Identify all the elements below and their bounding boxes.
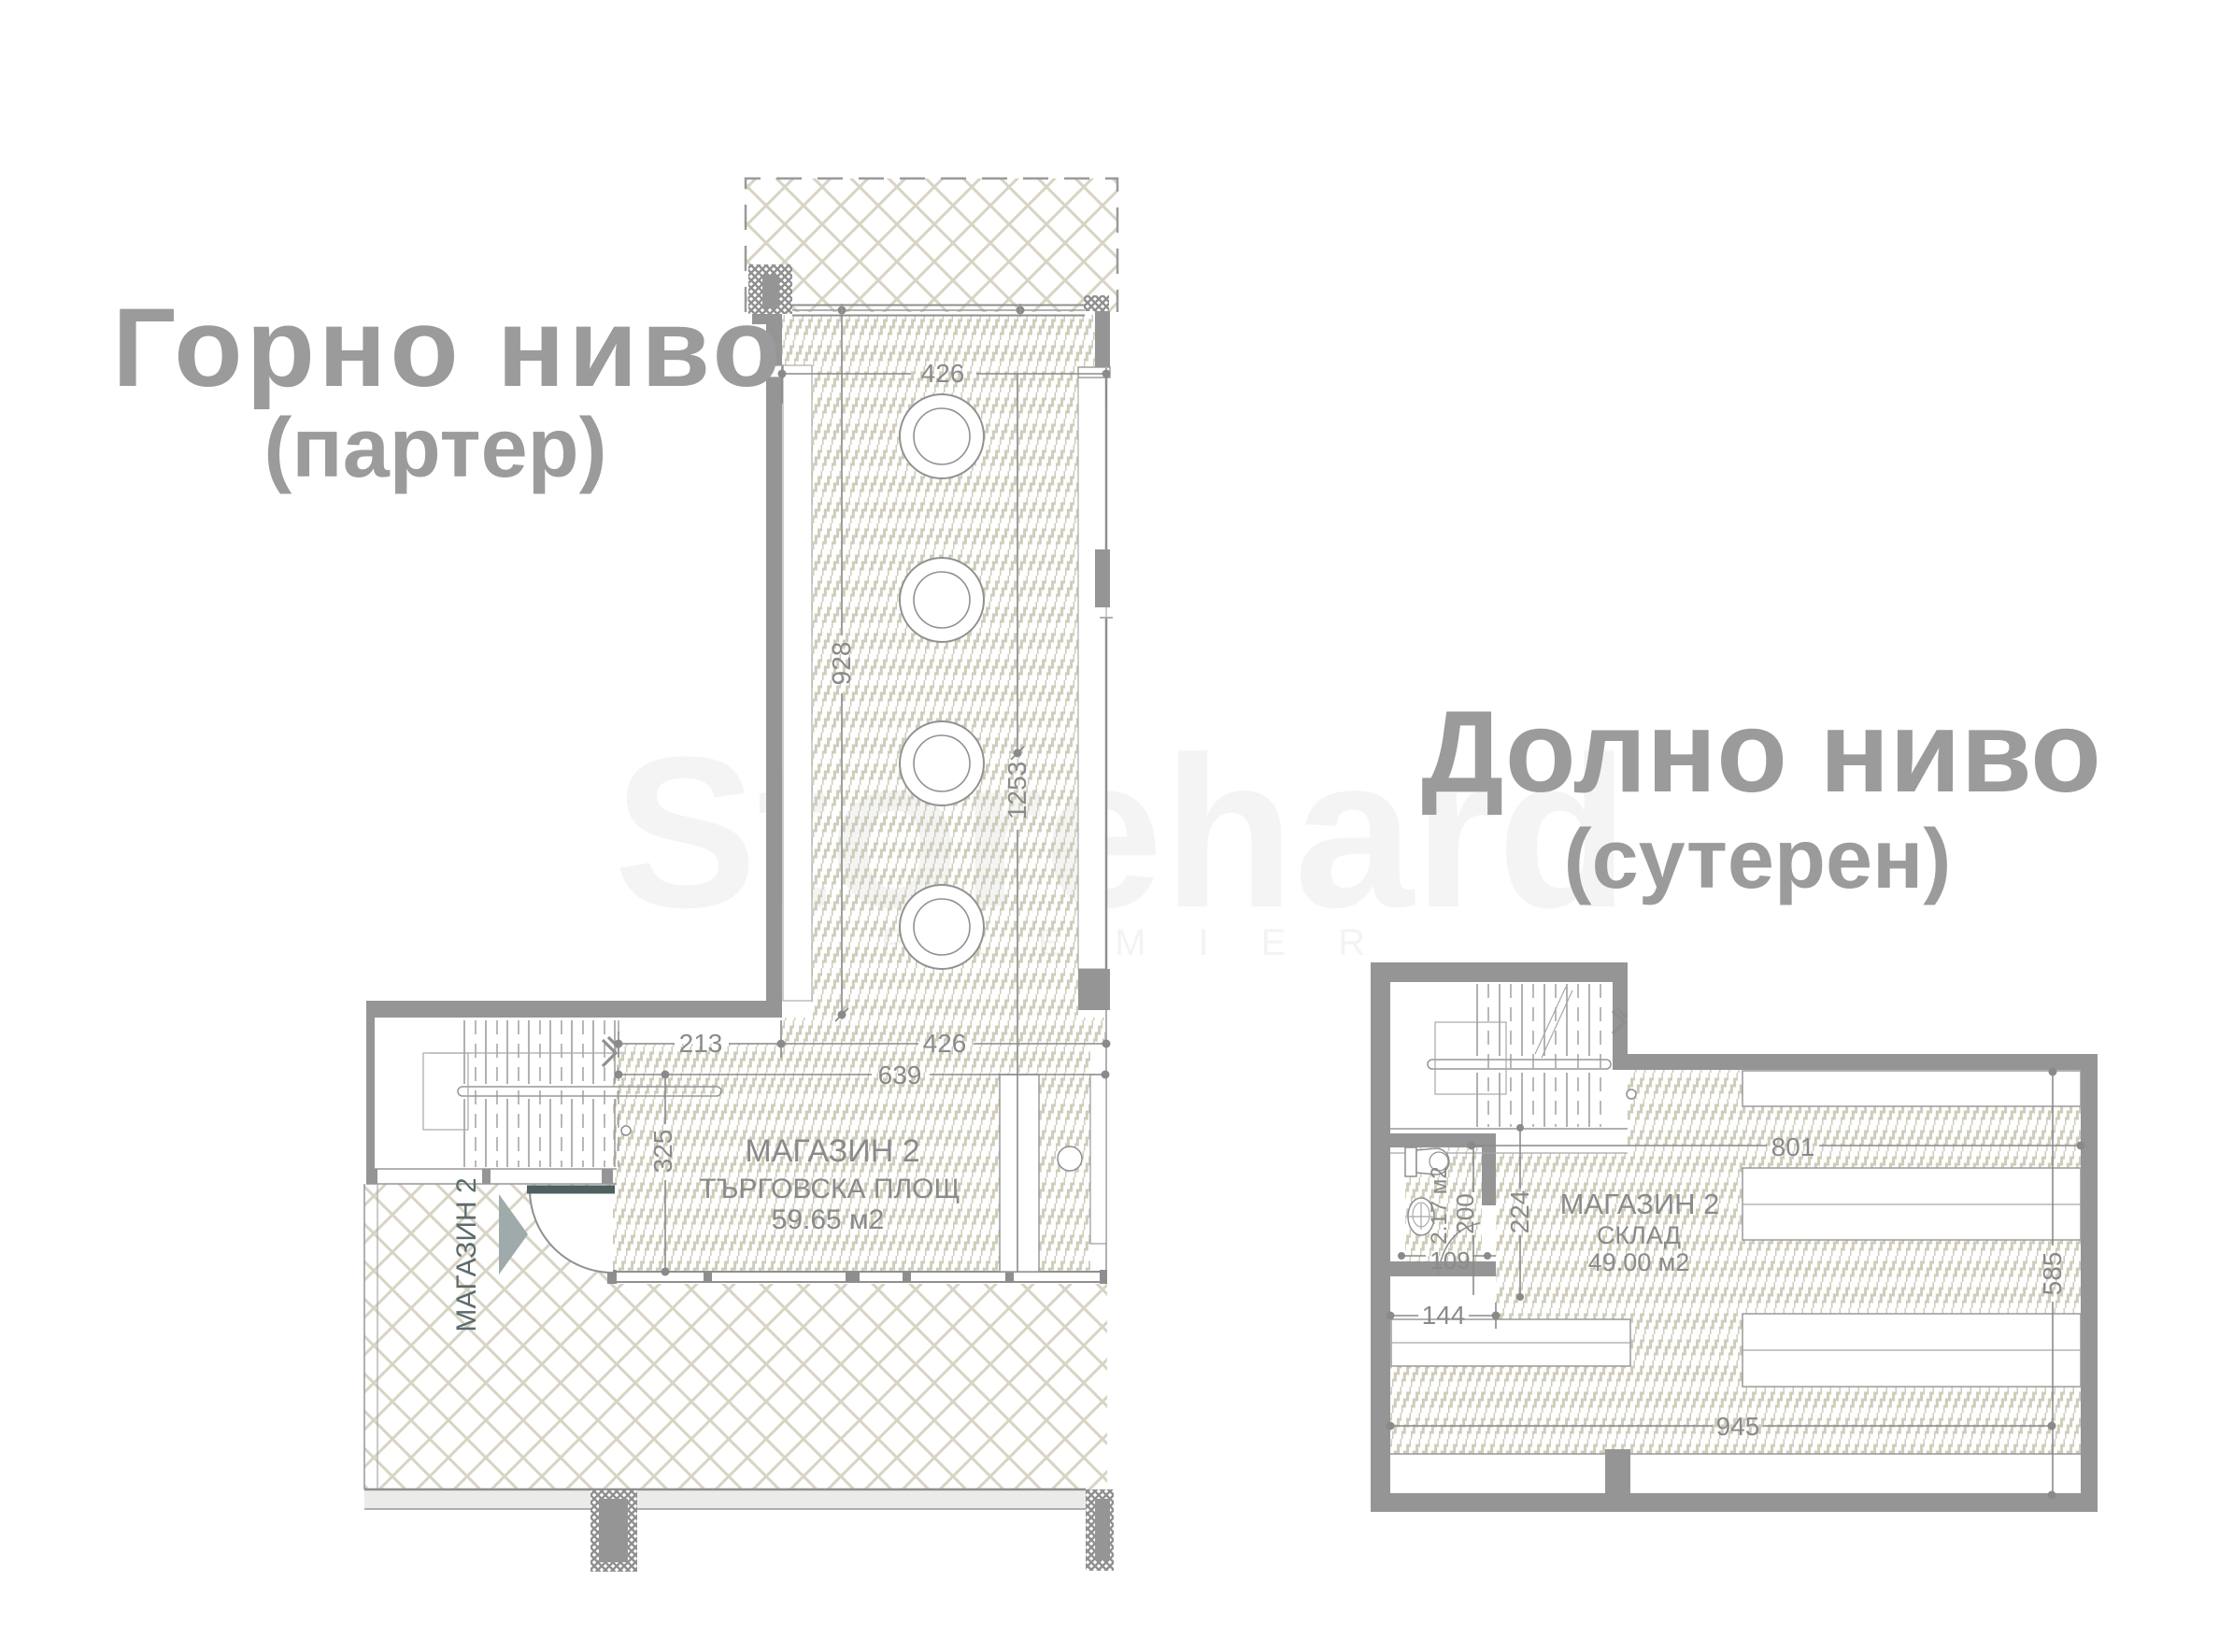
svg-text:945: 945 <box>1716 1412 1760 1441</box>
svg-text:ТЪРГОВСКА ПЛОЩ: ТЪРГОВСКА ПЛОЩ <box>699 1174 960 1204</box>
svg-text:426: 426 <box>921 359 965 388</box>
svg-text:144: 144 <box>1422 1301 1466 1330</box>
svg-text:1253: 1253 <box>1003 762 1031 819</box>
svg-text:109: 109 <box>1430 1246 1470 1275</box>
svg-text:59.65 м2: 59.65 м2 <box>772 1204 885 1235</box>
svg-text:(партер): (партер) <box>263 402 606 495</box>
svg-text:СКЛАД: СКЛАД <box>1597 1221 1681 1249</box>
svg-text:213: 213 <box>679 1029 723 1058</box>
svg-text:МАГАЗИН 2: МАГАЗИН 2 <box>1560 1188 1720 1220</box>
svg-text:928: 928 <box>827 642 856 686</box>
svg-text:(сутерен): (сутерен) <box>1564 813 1952 906</box>
svg-text:426: 426 <box>923 1029 967 1058</box>
svg-text:325: 325 <box>648 1130 677 1174</box>
svg-text:Горно ниво: Горно ниво <box>112 285 785 410</box>
svg-text:639: 639 <box>878 1061 922 1089</box>
svg-text:224: 224 <box>1505 1190 1534 1234</box>
svg-text:Долно ниво: Долно ниво <box>1421 688 2101 817</box>
svg-text:МАГАЗИН 2: МАГАЗИН 2 <box>745 1133 919 1169</box>
svg-text:200: 200 <box>1451 1193 1479 1233</box>
svg-text:МАГАЗИН 2: МАГАЗИН 2 <box>451 1177 482 1332</box>
svg-text:801: 801 <box>1771 1132 1815 1161</box>
svg-text:585: 585 <box>2038 1252 2067 1296</box>
svg-text:2.17 м2: 2.17 м2 <box>1427 1166 1452 1244</box>
svg-text:49.00 м2: 49.00 м2 <box>1588 1248 1690 1276</box>
